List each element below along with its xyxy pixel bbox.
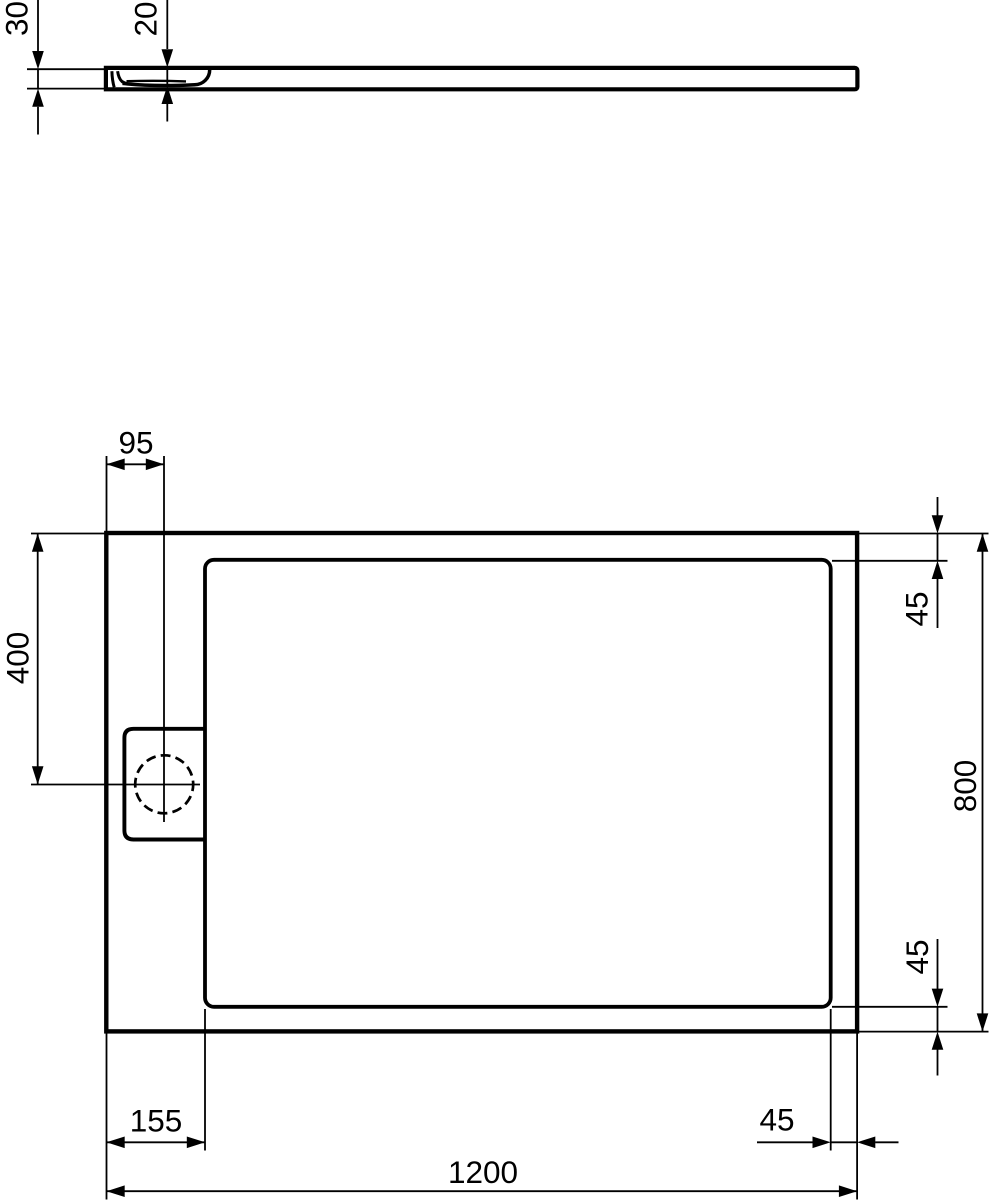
svg-text:30: 30 <box>0 1 35 36</box>
svg-text:45: 45 <box>899 591 935 626</box>
svg-text:800: 800 <box>947 760 983 813</box>
svg-text:400: 400 <box>0 632 36 685</box>
svg-text:45: 45 <box>899 939 935 974</box>
svg-text:45: 45 <box>759 1102 794 1138</box>
svg-text:1200: 1200 <box>448 1154 518 1190</box>
svg-text:95: 95 <box>118 425 153 461</box>
svg-text:20: 20 <box>128 1 164 36</box>
svg-text:155: 155 <box>130 1103 183 1139</box>
